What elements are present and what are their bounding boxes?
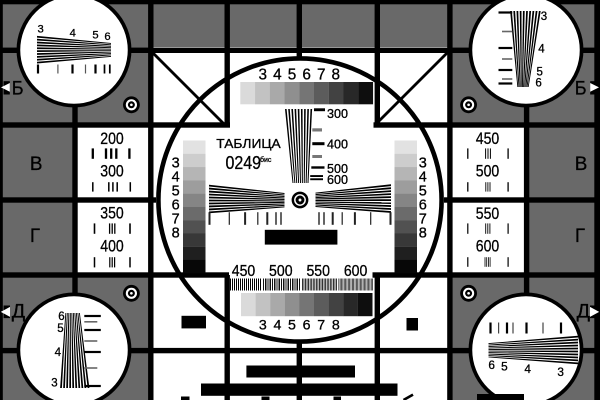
svg-text:600: 600 (476, 237, 500, 256)
svg-text:4: 4 (273, 66, 282, 83)
svg-text:350: 350 (100, 203, 124, 222)
svg-text:0249: 0249 (225, 152, 261, 173)
svg-text:Д: Д (12, 300, 26, 322)
svg-text:Д: Д (577, 300, 591, 322)
svg-text:500: 500 (476, 162, 500, 181)
svg-text:4: 4 (524, 362, 531, 376)
svg-text:ТАБЛИЦА: ТАБЛИЦА (216, 136, 281, 151)
svg-text:8: 8 (419, 226, 427, 242)
svg-text:300: 300 (100, 162, 124, 181)
svg-text:6: 6 (535, 77, 541, 89)
svg-text:7: 7 (317, 317, 325, 333)
svg-text:450: 450 (232, 263, 256, 280)
svg-text:600: 600 (327, 172, 348, 187)
svg-text:6: 6 (303, 317, 311, 333)
svg-text:5: 5 (501, 360, 508, 374)
svg-text:8: 8 (332, 317, 340, 333)
svg-text:3: 3 (51, 378, 57, 390)
svg-text:500: 500 (269, 263, 293, 280)
svg-text:Б: Б (12, 78, 24, 100)
svg-text:Б: Б (575, 78, 587, 100)
svg-text:400: 400 (327, 137, 348, 152)
svg-text:4: 4 (55, 347, 62, 359)
svg-text:7: 7 (317, 66, 326, 83)
svg-text:8: 8 (332, 66, 341, 83)
svg-text:бис: бис (260, 155, 272, 164)
svg-text:Г: Г (575, 225, 585, 247)
svg-text:300: 300 (327, 106, 348, 121)
svg-text:6: 6 (488, 358, 495, 372)
svg-text:3: 3 (557, 365, 564, 379)
svg-text:450: 450 (476, 129, 500, 148)
svg-text:4: 4 (538, 44, 545, 56)
svg-text:4: 4 (273, 317, 281, 333)
svg-text:400: 400 (100, 237, 124, 256)
svg-text:600: 600 (344, 263, 368, 280)
svg-text:5: 5 (288, 317, 296, 333)
svg-text:Г: Г (30, 225, 40, 247)
svg-text:5: 5 (288, 66, 297, 83)
svg-text:3: 3 (541, 11, 547, 23)
svg-text:3: 3 (259, 317, 267, 333)
svg-text:5: 5 (57, 323, 63, 335)
svg-text:6: 6 (302, 66, 311, 83)
svg-text:4: 4 (70, 27, 76, 39)
svg-text:8: 8 (172, 225, 180, 241)
svg-text:3: 3 (259, 66, 268, 83)
svg-text:В: В (575, 153, 588, 175)
svg-text:200: 200 (100, 129, 124, 148)
svg-text:6: 6 (104, 31, 110, 43)
svg-text:550: 550 (306, 263, 330, 280)
svg-text:550: 550 (476, 204, 500, 223)
svg-text:6: 6 (58, 311, 64, 323)
svg-text:В: В (30, 153, 43, 175)
svg-text:5: 5 (92, 29, 98, 41)
svg-text:3: 3 (37, 24, 43, 36)
